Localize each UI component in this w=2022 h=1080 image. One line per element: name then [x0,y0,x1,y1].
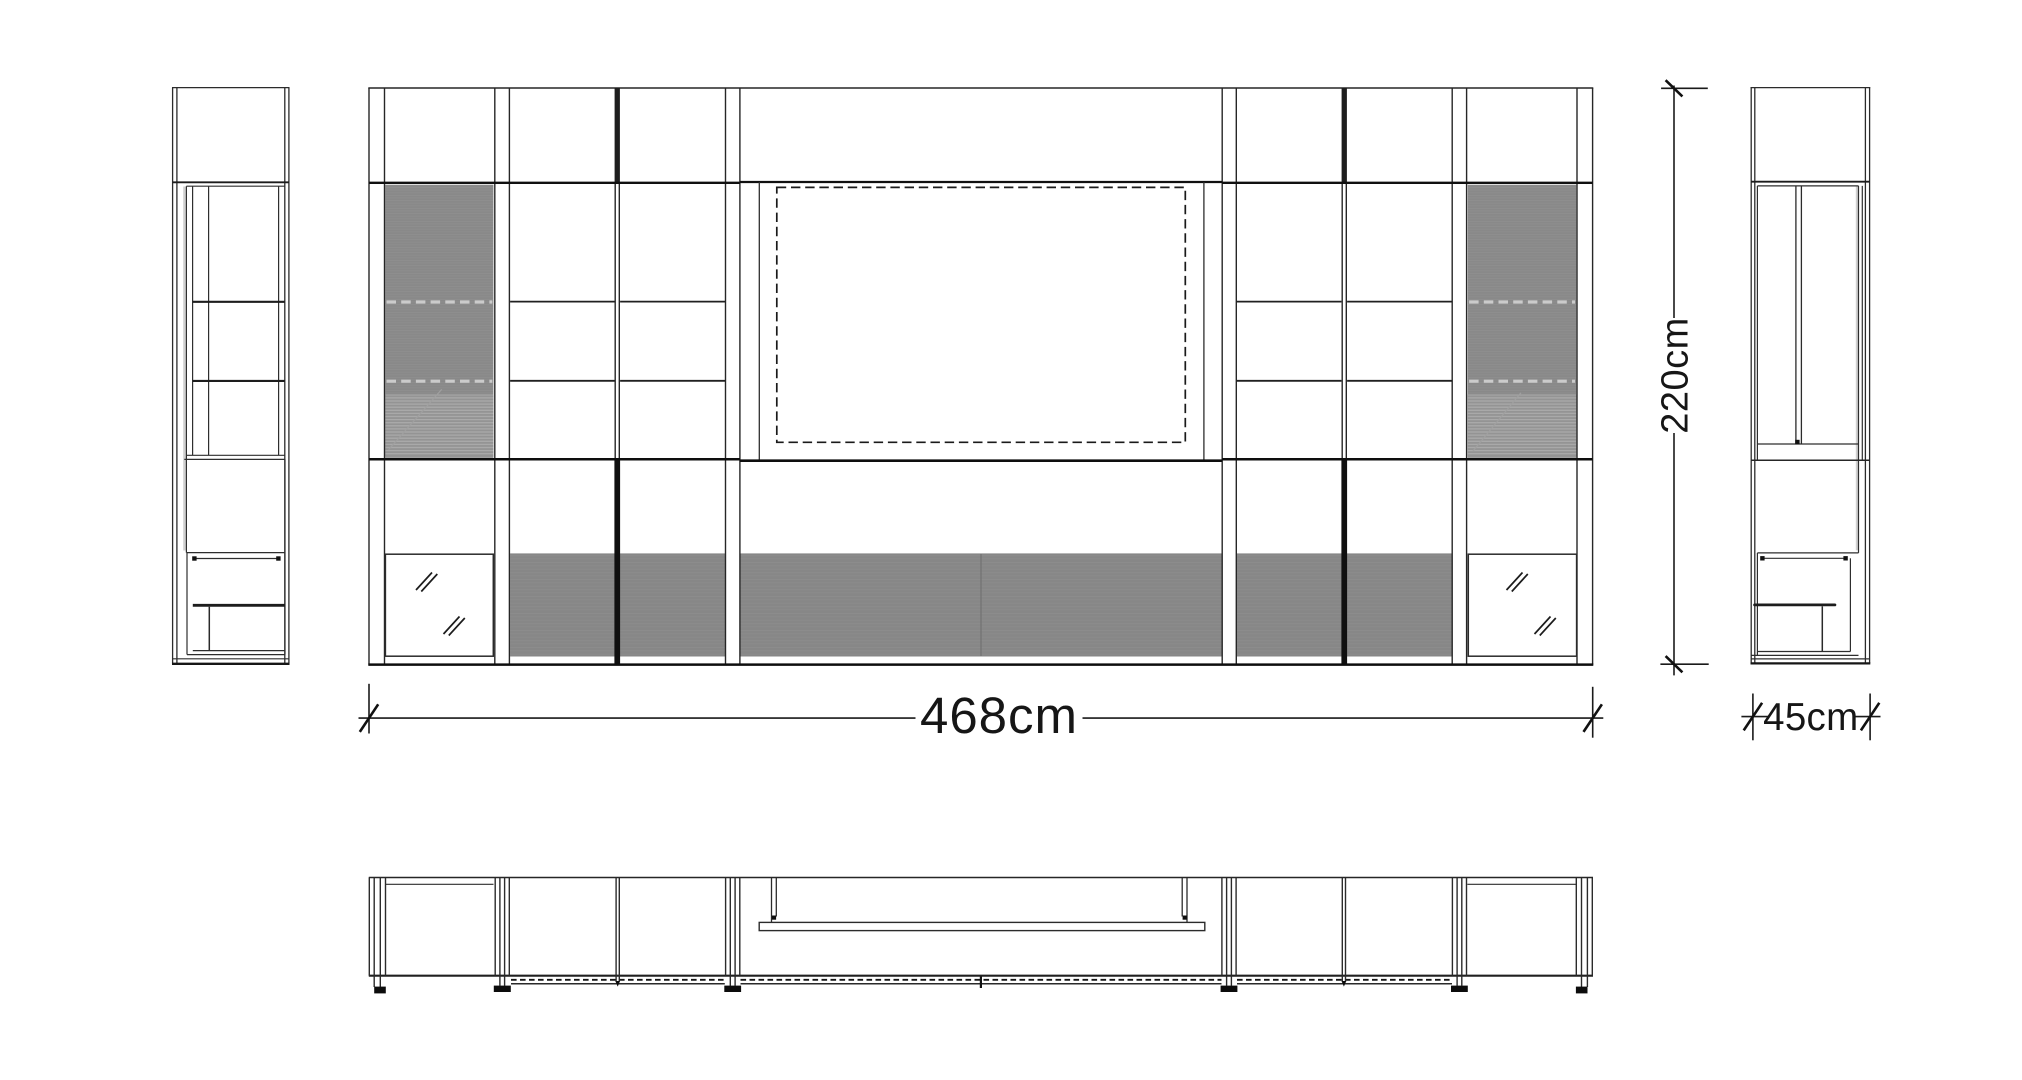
svg-text:45cm: 45cm [1763,696,1858,739]
svg-text:220cm: 220cm [1655,317,1697,434]
svg-text:468cm: 468cm [920,687,1078,744]
